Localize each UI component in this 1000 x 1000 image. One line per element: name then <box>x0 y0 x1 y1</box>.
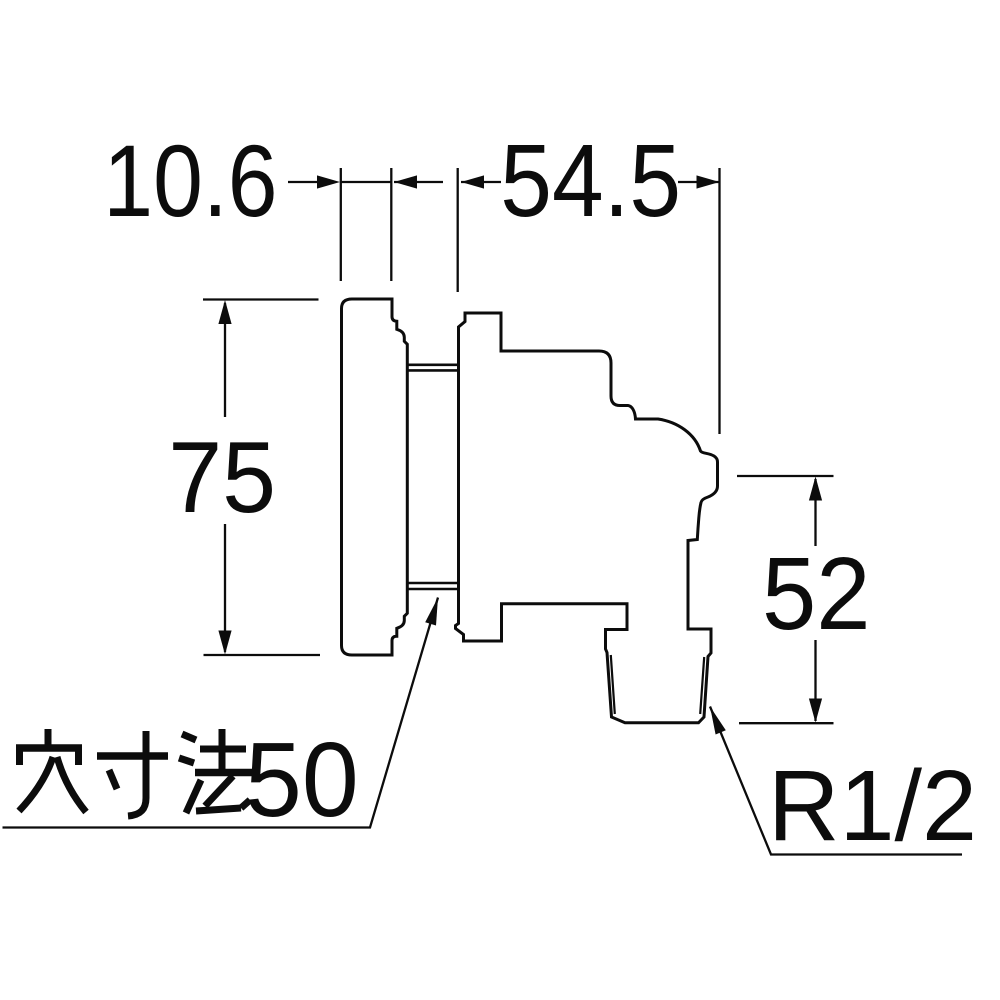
svg-text:52: 52 <box>762 536 871 651</box>
svg-text:54.5: 54.5 <box>500 123 681 238</box>
svg-text:10.6: 10.6 <box>103 124 277 238</box>
svg-text:50: 50 <box>245 721 359 839</box>
svg-text:75: 75 <box>168 422 276 534</box>
svg-text:R1/2: R1/2 <box>768 750 977 862</box>
